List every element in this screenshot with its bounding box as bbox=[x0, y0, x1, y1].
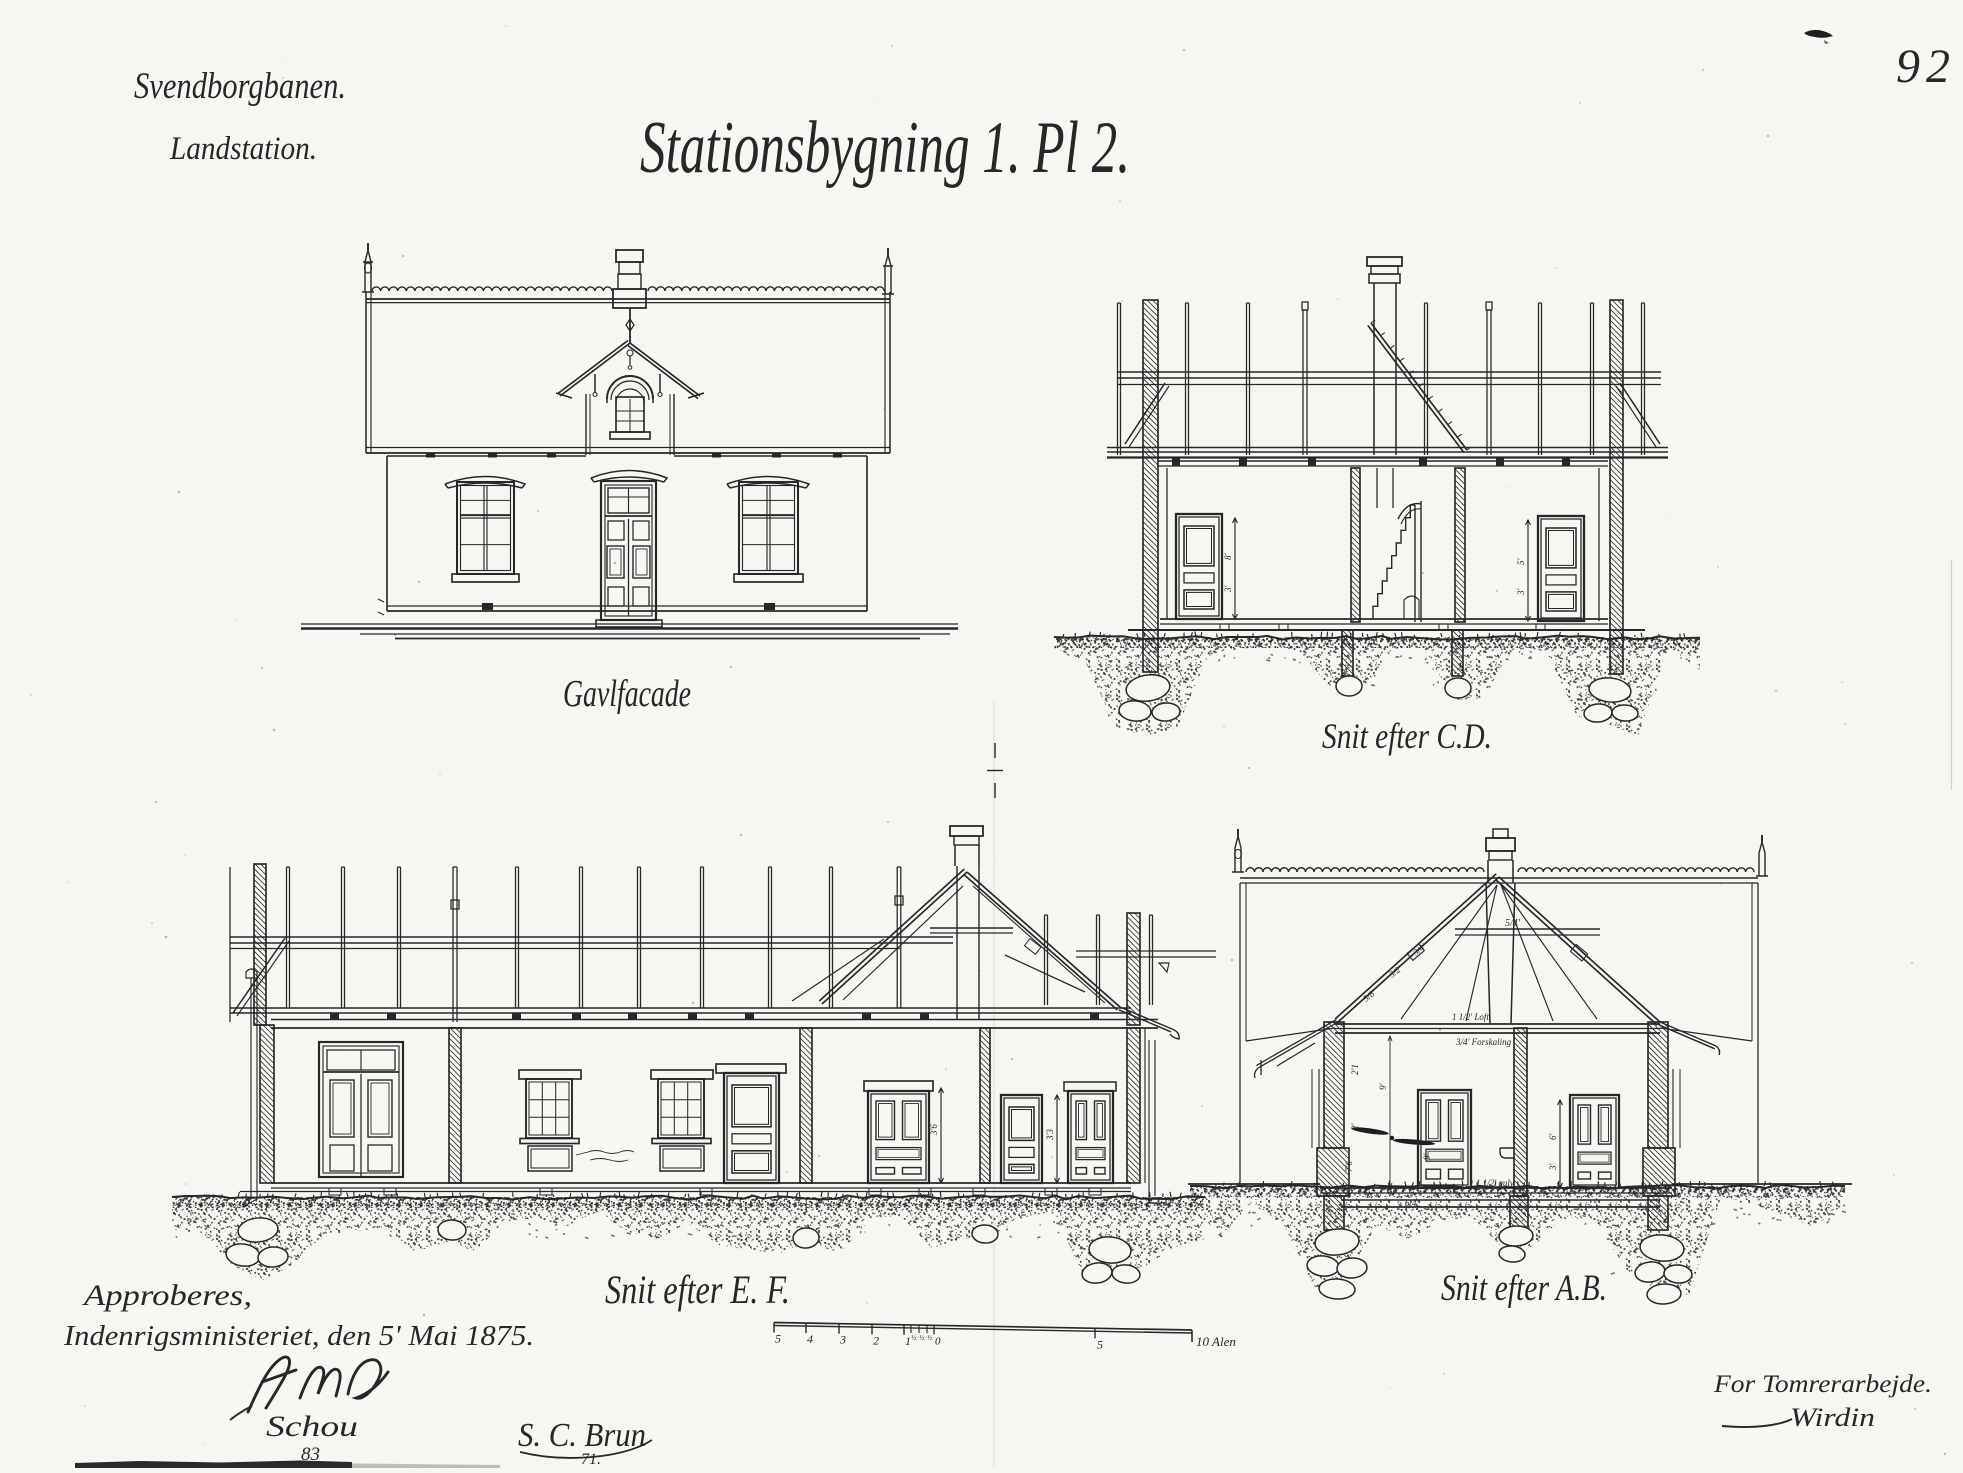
svg-text:½: ½ bbox=[927, 1334, 933, 1342]
svg-text:Landstation.: Landstation. bbox=[169, 131, 317, 167]
svg-text:9': 9' bbox=[1378, 1083, 1388, 1091]
svg-text:Snit efter E. F.: Snit efter E. F. bbox=[605, 1267, 790, 1312]
svg-text:5: 5 bbox=[775, 1332, 781, 1346]
svg-text:3'3: 3'3 bbox=[1045, 1129, 1055, 1141]
svg-text:½: ½ bbox=[911, 1334, 917, 1342]
svg-text:5': 5' bbox=[1516, 558, 1526, 566]
svg-text:3': 3' bbox=[1223, 585, 1233, 594]
svg-text:3/4' Forskaling: 3/4' Forskaling bbox=[1455, 1037, 1512, 1047]
svg-text:Schou: Schou bbox=[266, 1410, 358, 1443]
svg-text:Indenrigsministeriet, den 5' M: Indenrigsministeriet, den 5' Mai 1875. bbox=[63, 1320, 534, 1352]
svg-text:Svendborgbanen.: Svendborgbanen. bbox=[134, 66, 346, 107]
svg-text:0: 0 bbox=[935, 1335, 941, 1347]
svg-text:6': 6' bbox=[1548, 1133, 1558, 1141]
svg-text:Snit efter A.B.: Snit efter A.B. bbox=[1441, 1268, 1607, 1309]
svg-text:½: ½ bbox=[919, 1334, 925, 1342]
svg-text:3': 3' bbox=[1516, 588, 1526, 597]
svg-text:Snit efter C.D.: Snit efter C.D. bbox=[1322, 716, 1492, 756]
svg-text:10 Alen: 10 Alen bbox=[1196, 1334, 1236, 1349]
svg-text:Wirdin: Wirdin bbox=[1790, 1403, 1875, 1432]
svg-text:5: 5 bbox=[1097, 1337, 1103, 1351]
svg-text:For Tomrerarbejde.: For Tomrerarbejde. bbox=[1713, 1371, 1932, 1398]
svg-text:Gavlfacade: Gavlfacade bbox=[563, 673, 691, 715]
svg-text:8': 8' bbox=[1223, 553, 1233, 561]
svg-text:2'1: 2'1 bbox=[1350, 1064, 1360, 1075]
svg-text:4: 4 bbox=[807, 1332, 813, 1346]
svg-text:Stationsbygning 1. Pl 2.: Stationsbygning 1. Pl 2. bbox=[640, 107, 1130, 189]
svg-text:5/4': 5/4' bbox=[1505, 918, 1521, 929]
svg-text:3: 3 bbox=[839, 1333, 846, 1347]
svg-text:3'6: 3'6 bbox=[929, 1124, 939, 1136]
svg-text:Approberes,: Approberes, bbox=[82, 1279, 252, 1312]
svg-text:71.: 71. bbox=[581, 1451, 601, 1468]
svg-text:S. C. Brun: S. C. Brun bbox=[518, 1417, 646, 1454]
svg-text:1 1/2' Loft: 1 1/2' Loft bbox=[1452, 1012, 1489, 1022]
svg-text:2: 2 bbox=[873, 1333, 879, 1347]
svg-text:3': 3' bbox=[1548, 1163, 1558, 1172]
svg-text:7'6: 7'6 bbox=[1344, 1161, 1354, 1172]
svg-text:92: 92 bbox=[1896, 40, 1956, 93]
